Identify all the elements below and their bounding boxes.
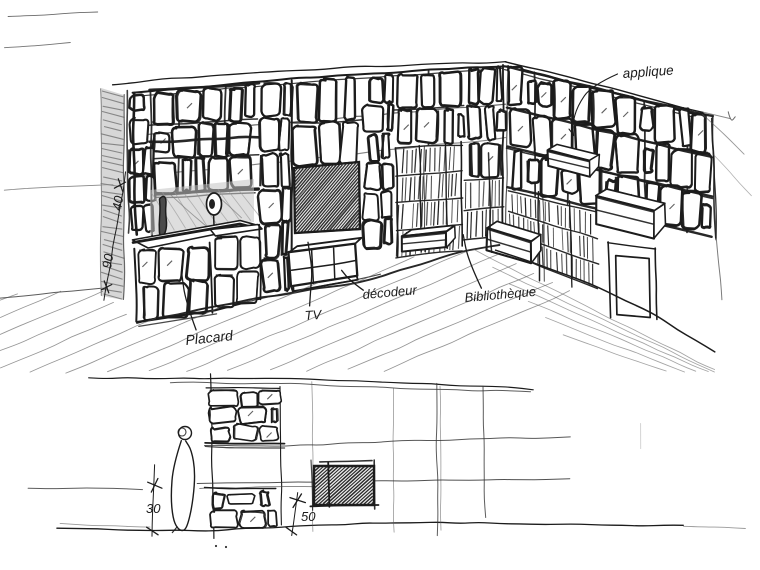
svg-text:50: 50	[301, 509, 316, 524]
svg-text:30: 30	[146, 501, 161, 516]
svg-text:TV: TV	[304, 307, 323, 323]
